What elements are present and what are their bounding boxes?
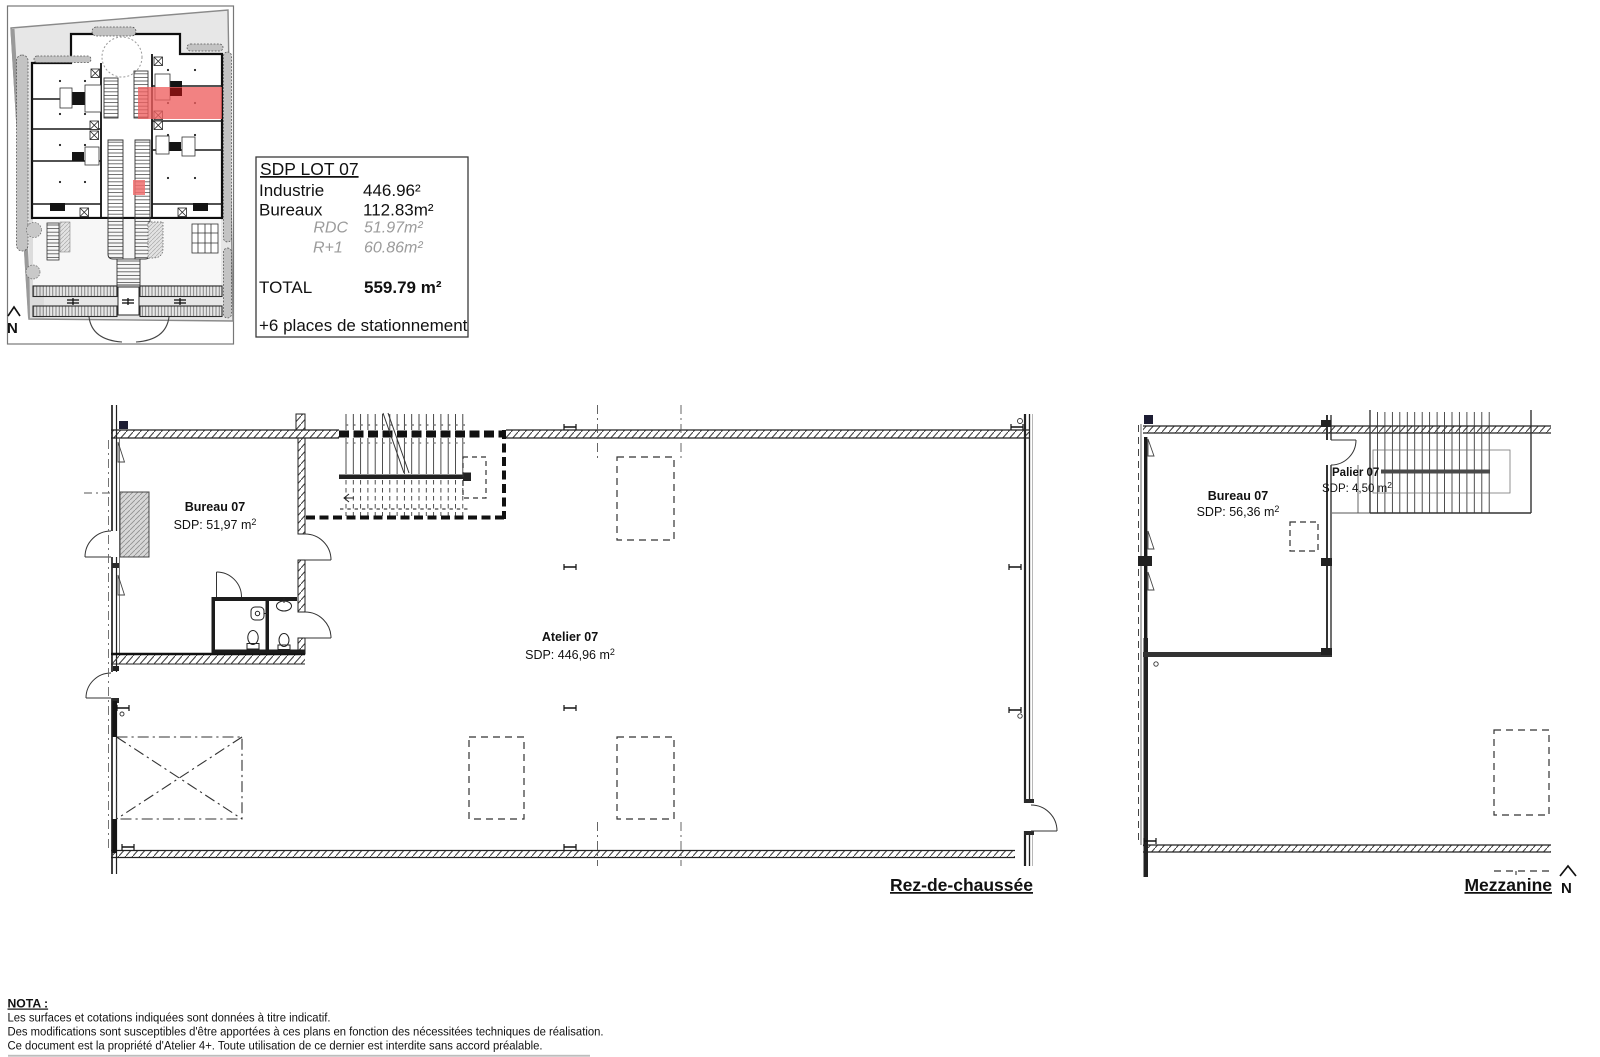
- svg-text:Ce document est la propriété d: Ce document est la propriété d'Atelier 4…: [8, 1039, 543, 1053]
- svg-text:SDP: 4,50 m2: SDP: 4,50 m2: [1322, 480, 1392, 495]
- svg-text:112.83m²: 112.83m²: [363, 201, 434, 220]
- svg-text:Atelier 07: Atelier 07: [542, 630, 598, 644]
- svg-text:Bureaux: Bureaux: [259, 201, 323, 220]
- svg-text:SDP: 51,97 m2: SDP: 51,97 m2: [174, 517, 257, 532]
- svg-text:559.79 m²: 559.79 m²: [364, 278, 442, 297]
- svg-text:TOTAL: TOTAL: [259, 278, 312, 297]
- svg-text:SDP: 446,96 m2: SDP: 446,96 m2: [525, 647, 615, 662]
- svg-text:SDP LOT 07: SDP LOT 07: [260, 159, 359, 179]
- svg-text:Mezzanine: Mezzanine: [1464, 875, 1552, 895]
- svg-text:Bureau 07: Bureau 07: [1208, 489, 1268, 503]
- svg-text:NOTA :: NOTA :: [8, 997, 49, 1011]
- svg-text:Les surfaces et cotations indi: Les surfaces et cotations indiquées sont…: [8, 1011, 331, 1025]
- svg-text:N: N: [7, 320, 18, 337]
- svg-text:Rez-de-chaussée: Rez-de-chaussée: [890, 875, 1033, 895]
- svg-text:60.86m²: 60.86m²: [364, 240, 423, 257]
- svg-text:SDP: 56,36 m2: SDP: 56,36 m2: [1197, 504, 1280, 519]
- svg-text:Industrie: Industrie: [259, 181, 324, 200]
- svg-text:Des modifications sont suscept: Des modifications sont susceptibles d'êt…: [8, 1025, 604, 1039]
- svg-text:RDC: RDC: [313, 220, 348, 237]
- svg-text:51.97m²: 51.97m²: [364, 220, 423, 237]
- svg-text:+6 places de stationnement: +6 places de stationnement: [259, 316, 468, 335]
- svg-text:N: N: [1561, 880, 1572, 897]
- svg-text:446.96²: 446.96²: [363, 181, 421, 200]
- svg-text:Bureau 07: Bureau 07: [185, 500, 245, 514]
- svg-text:Palier 07: Palier 07: [1332, 467, 1379, 479]
- svg-text:R+1: R+1: [313, 240, 343, 257]
